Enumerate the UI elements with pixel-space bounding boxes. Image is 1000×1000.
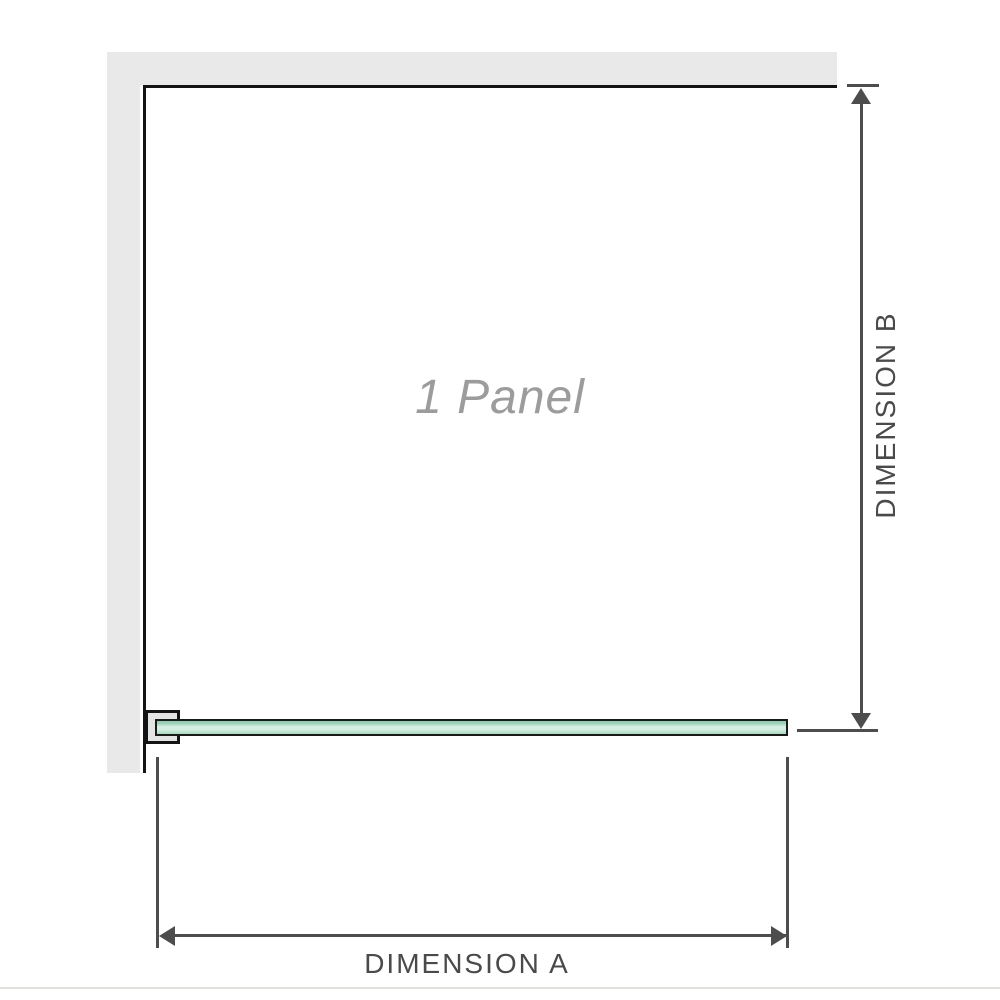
arrow-down-icon [851, 713, 871, 729]
dimension-a-line [162, 934, 786, 937]
dimension-a-label: DIMENSION A [317, 948, 617, 980]
dimension-a-extension-line-right [786, 757, 789, 948]
panel-count-label: 1 Panel [350, 370, 650, 425]
arrow-right-icon [771, 926, 787, 946]
enclosure-outline-top [143, 85, 837, 88]
dimension-a-extension-line-left [156, 757, 159, 948]
glass-panel [155, 719, 788, 736]
dimension-b-extension-tick-top [847, 84, 879, 87]
baseline-divider [0, 987, 1000, 989]
arrow-left-icon [159, 926, 175, 946]
dimension-b-extension-tick-bottom [797, 729, 878, 732]
enclosure-outline-left [143, 85, 146, 773]
wall-segment-top [107, 52, 837, 85]
diagram-canvas: 1 Panel DIMENSION B DIMENSION A [0, 0, 1000, 1000]
dimension-b-line [860, 95, 863, 720]
dimension-b-label: DIMENSION B [871, 265, 901, 565]
wall-segment-left [107, 52, 140, 773]
arrow-up-icon [851, 88, 871, 104]
